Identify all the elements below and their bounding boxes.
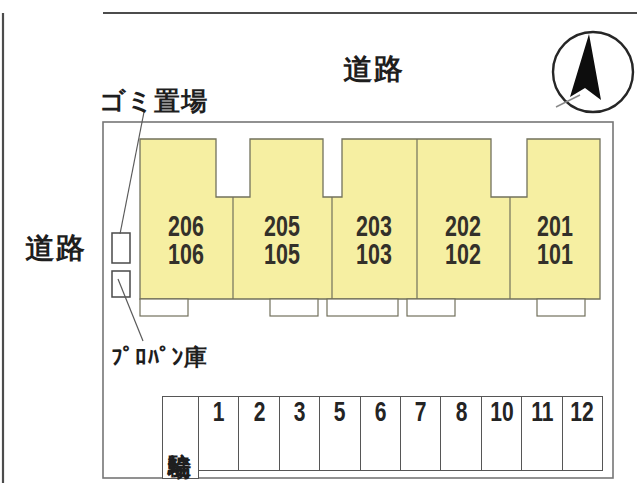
entrance-porch bbox=[270, 299, 318, 316]
unit-label-201-101: 201 101 bbox=[519, 212, 590, 268]
unit-label-203-103: 203 103 bbox=[338, 212, 409, 268]
unit-lower-number: 106 bbox=[150, 240, 221, 268]
bike-space-number: 7 bbox=[415, 399, 427, 426]
bike-space-cell: 7 bbox=[400, 397, 440, 470]
bike-space-number: 2 bbox=[253, 399, 265, 426]
compass-north-icon bbox=[553, 32, 633, 112]
bike-space-number: 11 bbox=[531, 399, 553, 426]
bike-space-number: 5 bbox=[334, 399, 346, 426]
entrance-porch bbox=[140, 299, 188, 316]
bike-space-number: 3 bbox=[294, 399, 306, 426]
bike-space-cell: 10 bbox=[481, 397, 521, 470]
bicycle-parking-spaces: 1 2 3 5 6 7 8 10 11 12 bbox=[198, 396, 603, 471]
propane-box bbox=[112, 271, 130, 297]
bike-space-cell: 3 bbox=[279, 397, 319, 470]
propane-label: ﾌﾟﾛﾊﾟﾝ庫 bbox=[111, 342, 208, 373]
garbage-label: ゴミ置場 bbox=[99, 84, 208, 119]
unit-upper-number: 203 bbox=[338, 212, 409, 240]
bike-space-cell: 12 bbox=[562, 397, 602, 470]
bike-space-cell: 6 bbox=[360, 397, 400, 470]
unit-upper-number: 202 bbox=[427, 212, 498, 240]
bike-space-number: 12 bbox=[571, 399, 594, 426]
unit-lower-number: 105 bbox=[246, 240, 317, 268]
unit-upper-number: 206 bbox=[150, 212, 221, 240]
bike-space-cell: 5 bbox=[319, 397, 359, 470]
road-label-top: 道路 bbox=[343, 50, 405, 90]
bicycle-parking-label-cell: 駐輪場 bbox=[162, 396, 199, 479]
bike-space-number: 6 bbox=[374, 399, 386, 426]
unit-label-202-102: 202 102 bbox=[427, 212, 498, 268]
bike-space-cell: 11 bbox=[521, 397, 561, 470]
site-plan: 道路 道路 ゴミ置場 ﾌﾟﾛﾊﾟﾝ庫 206 106 205 105 203 1… bbox=[0, 0, 640, 496]
unit-label-205-105: 205 105 bbox=[246, 212, 317, 268]
bike-space-number: 10 bbox=[490, 399, 513, 426]
unit-lower-number: 103 bbox=[338, 240, 409, 268]
bike-space-cell: 1 bbox=[199, 397, 238, 470]
road-label-left: 道路 bbox=[25, 229, 87, 269]
unit-upper-number: 201 bbox=[519, 212, 590, 240]
unit-lower-number: 102 bbox=[427, 240, 498, 268]
unit-upper-number: 205 bbox=[246, 212, 317, 240]
unit-label-206-106: 206 106 bbox=[150, 212, 221, 268]
bike-space-cell: 2 bbox=[238, 397, 278, 470]
bike-space-cell: 8 bbox=[440, 397, 480, 470]
entrance-porch bbox=[407, 299, 455, 316]
unit-lower-number: 101 bbox=[519, 240, 590, 268]
garbage-box bbox=[112, 233, 130, 263]
bicycle-parking-label: 駐輪場 bbox=[165, 435, 196, 441]
entrance-porch bbox=[327, 299, 398, 316]
bike-space-number: 8 bbox=[455, 399, 467, 426]
bike-space-number: 1 bbox=[213, 399, 225, 426]
entrance-porch bbox=[537, 299, 585, 316]
